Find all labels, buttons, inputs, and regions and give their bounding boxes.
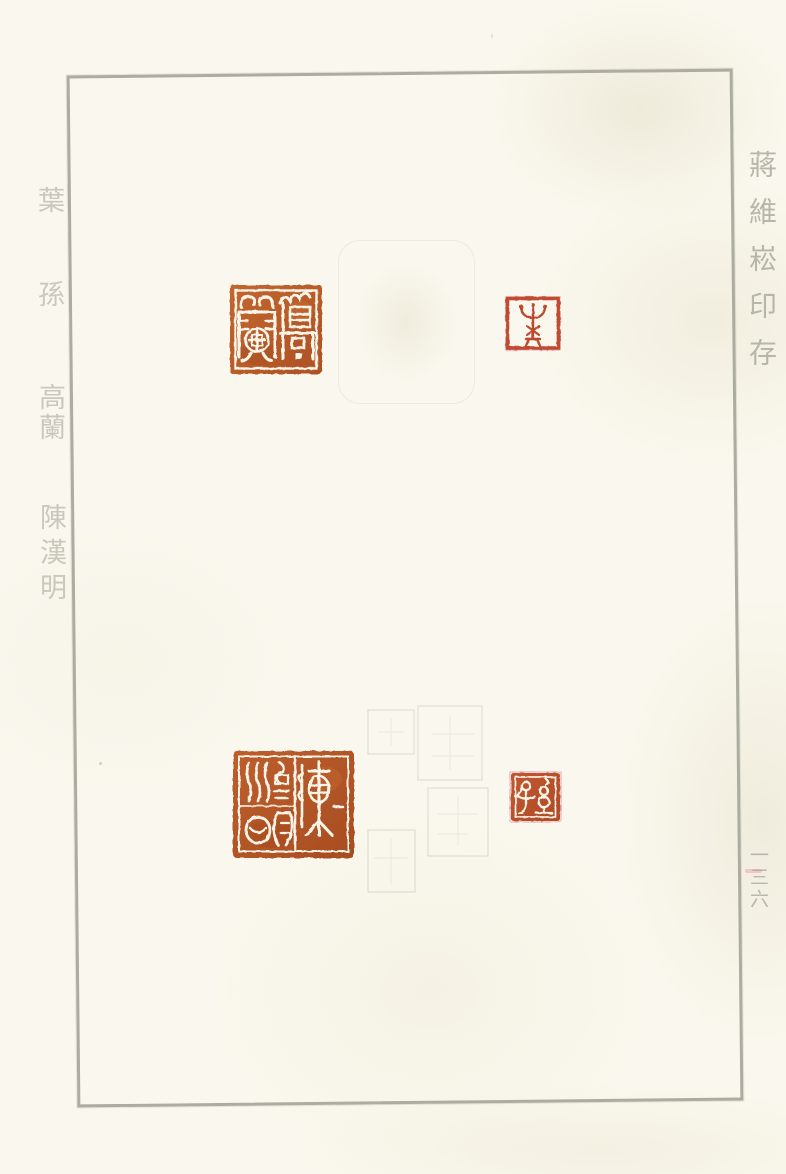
book-title-vertical: 蔣維崧印存 — [740, 150, 780, 385]
seal-impression-sun — [509, 771, 562, 823]
seal-impression-ye — [504, 295, 562, 352]
showthrough-ghost-top — [338, 240, 475, 404]
scan-speck — [491, 34, 493, 38]
page-number: 一三六 — [744, 845, 771, 911]
scanned-book-page: 葉 孫 高蘭 陳漢明 蔣維崧印存 一三六 — [0, 0, 786, 1174]
seal-impression-gaolan — [228, 283, 324, 376]
seal-glyph-ye — [519, 303, 547, 346]
page-frame — [67, 69, 744, 1108]
showthrough-ghost-seals — [358, 698, 498, 898]
seal-impression-chenhanming — [231, 749, 356, 860]
left-margin-label-chenhanming: 陳漢明 — [32, 503, 71, 608]
scan-speck — [99, 762, 102, 765]
page-number-ink-tint — [745, 869, 762, 873]
left-margin-label-gaolan: 高蘭 — [31, 383, 70, 443]
left-margin-label-sun: 孫 — [30, 280, 69, 307]
left-margin-label-ye: 葉 — [30, 186, 69, 213]
